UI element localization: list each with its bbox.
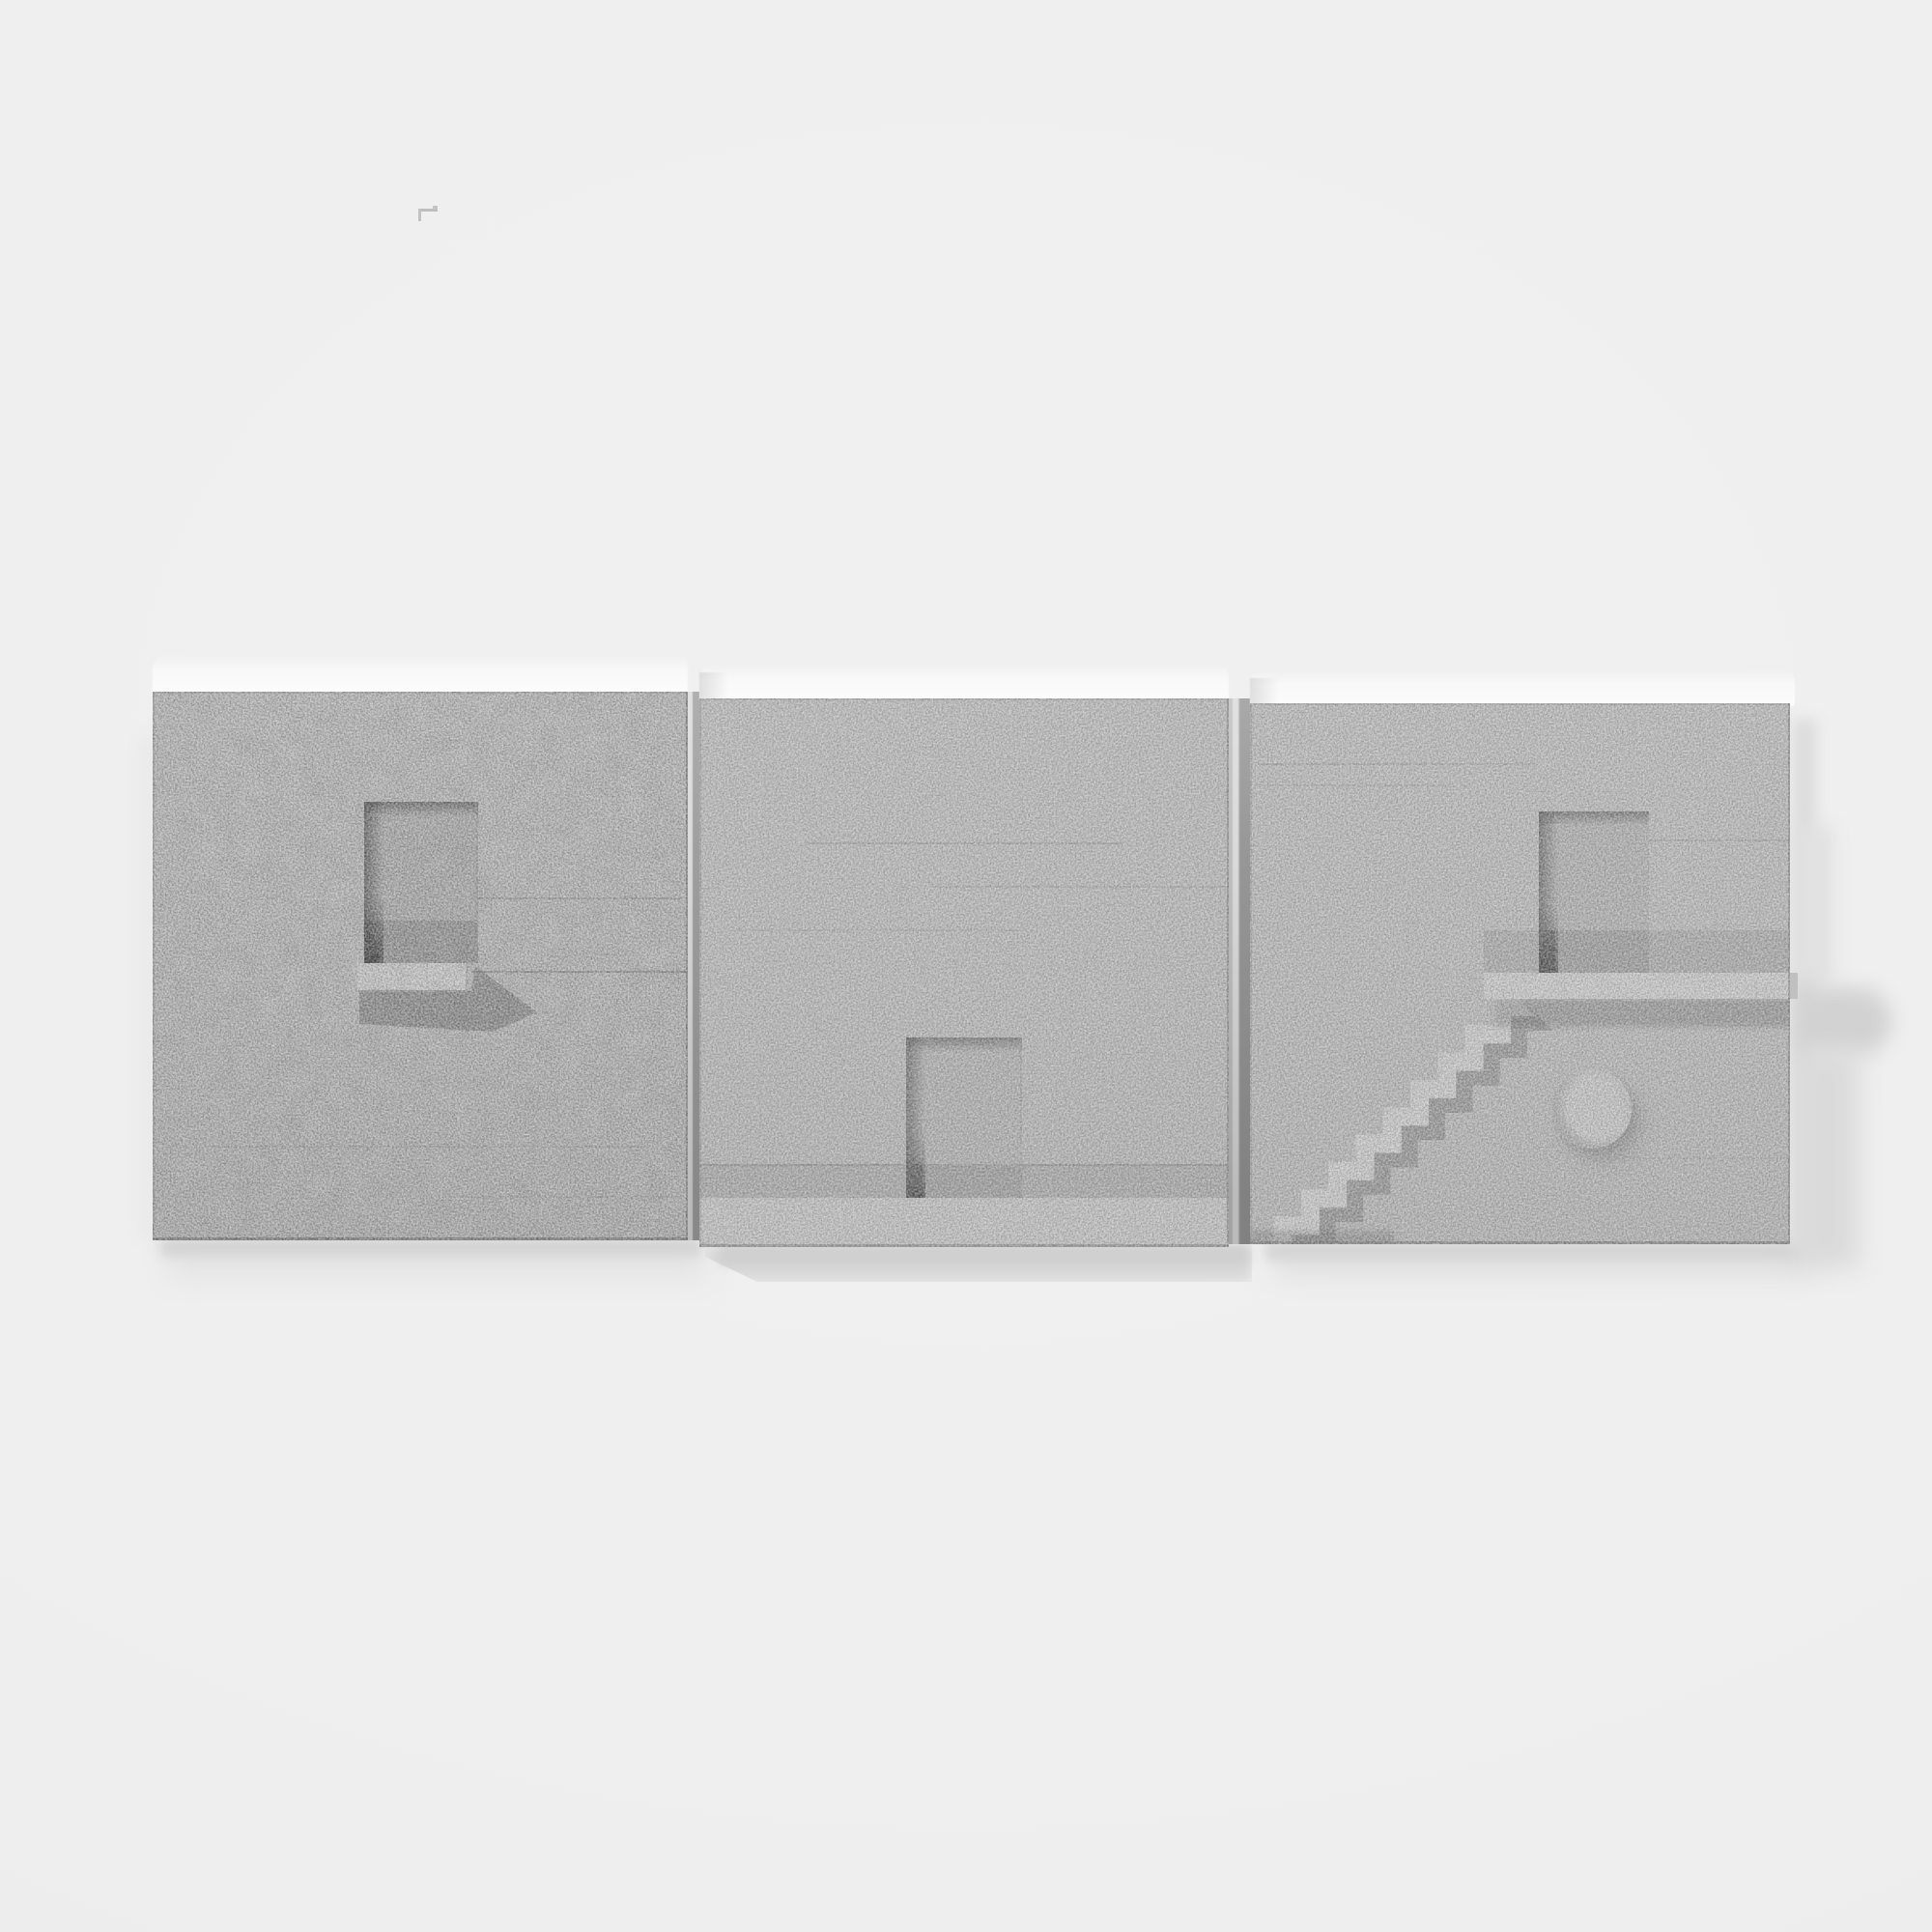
tile-left-top-surface: [153, 655, 688, 696]
niche-recess: [364, 802, 478, 963]
tile-gap-shading: [1229, 698, 1250, 1244]
tile-edge: [1250, 703, 1252, 1244]
tile-edge: [153, 1237, 688, 1240]
peg-top-face: [1558, 1075, 1627, 1144]
tile-middle-top-surface: [699, 665, 1229, 702]
concrete-peg-knob: [1552, 1069, 1632, 1149]
tile-gap: [1229, 698, 1250, 1244]
ledge-end-cap: [1790, 973, 1798, 999]
tile-edge: [1250, 1241, 1790, 1244]
shelf-ledge: [357, 963, 468, 992]
walkway-ledge: [1484, 973, 1790, 999]
plinth-ledge-front: [699, 1198, 1229, 1247]
tile-left-face: [153, 692, 688, 1240]
score-line: [806, 842, 1124, 844]
niche-deep-corner: [364, 942, 379, 963]
tile-middle-face: [699, 698, 1229, 1247]
tile-edge: [153, 692, 155, 1240]
tile-edge: [153, 692, 688, 694]
tile-right-top-surface: [1250, 670, 1795, 706]
tile-edge: [699, 698, 1229, 700]
score-line: [442, 1196, 682, 1198]
tile-gap-shading: [688, 692, 699, 1240]
score-line: [477, 897, 682, 899]
ledge-under-shadow: [1493, 999, 1790, 1027]
score-line: [931, 886, 1229, 888]
photo-backdrop-wall: [0, 0, 1932, 1932]
tile-edge: [1250, 703, 1790, 705]
tile-edge: [699, 698, 701, 1247]
niche-inner-right-edge: [476, 802, 478, 963]
score-line: [213, 1146, 647, 1148]
door-inner-right-edge: [1020, 1037, 1022, 1198]
score-line: [738, 929, 1018, 931]
tile-right-face: [1250, 703, 1790, 1244]
tile-gap: [688, 692, 699, 1240]
door-deep-corner: [906, 1164, 923, 1198]
door-recess: [906, 1037, 1022, 1198]
score-line: [471, 971, 688, 973]
concrete-tile-triptych: [0, 0, 1932, 1932]
